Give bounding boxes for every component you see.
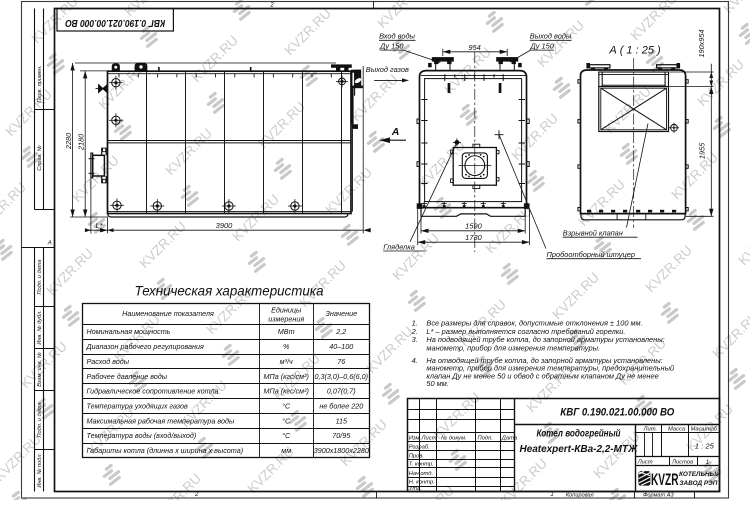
svg-text:°С: °С xyxy=(282,431,291,440)
svg-text:1: 1 xyxy=(550,492,553,498)
svg-text:А ( 1 : 25 ): А ( 1 : 25 ) xyxy=(608,45,661,57)
svg-text:Нач.отд.: Нач.отд. xyxy=(409,471,433,477)
svg-text:Выход воды: Выход воды xyxy=(530,32,572,41)
svg-text:°С: °С xyxy=(282,401,291,410)
svg-text:1: 1 xyxy=(706,459,709,466)
svg-text:Перв. примен.: Перв. примен. xyxy=(37,65,43,102)
svg-text:L*: L* xyxy=(95,221,103,230)
svg-text:Лит.: Лит. xyxy=(643,427,658,433)
svg-text:70/95: 70/95 xyxy=(332,431,351,440)
svg-text:не более 220: не более 220 xyxy=(319,401,363,410)
svg-text:МПа (кгс/см²): МПа (кгс/см²) xyxy=(264,372,309,381)
svg-text:Гляделка: Гляделка xyxy=(383,242,415,251)
svg-text:Подп. и дата: Подп. и дата xyxy=(37,402,43,437)
svg-text:Номинальная мощность: Номинальная мощность xyxy=(87,327,171,336)
svg-text:Выход газов: Выход газов xyxy=(366,65,409,74)
svg-text:Подп.: Подп. xyxy=(478,435,493,441)
svg-text:50 мм.: 50 мм. xyxy=(426,379,448,388)
svg-text:0,07(0,7): 0,07(0,7) xyxy=(327,387,356,396)
svg-text:мм: мм xyxy=(281,446,291,455)
svg-text:Габариты котла (длинна х ширин: Габариты котла (длинна х ширина х высота… xyxy=(87,446,244,455)
svg-text:3900х1800х2280: 3900х1800х2280 xyxy=(314,446,369,455)
svg-text:2: 2 xyxy=(269,3,274,9)
svg-text:Пров.: Пров. xyxy=(409,453,424,459)
svg-text:Единицы: Единицы xyxy=(271,305,302,314)
svg-text:Техническая характеристика: Техническая характеристика xyxy=(135,283,324,299)
svg-text:Гидравлическое сопротивление к: Гидравлическое сопротивление котла xyxy=(87,387,219,396)
svg-text:Масштаб: Масштаб xyxy=(691,427,718,433)
svg-text:954: 954 xyxy=(468,43,481,52)
svg-text:0,3(3,0)–0,6(6,0): 0,3(3,0)–0,6(6,0) xyxy=(315,372,369,381)
svg-text:Дата: Дата xyxy=(501,435,518,441)
svg-text:Н. контр.: Н. контр. xyxy=(409,480,435,486)
svg-text:4.: 4. xyxy=(412,356,418,365)
svg-text:м³/ч: м³/ч xyxy=(280,357,293,366)
svg-text:Подп. и дата: Подп. и дата xyxy=(37,259,43,294)
svg-text:Формат А3: Формат А3 xyxy=(643,493,674,499)
svg-text:Копировал: Копировал xyxy=(566,493,595,499)
svg-text:°С: °С xyxy=(282,416,291,425)
svg-text:А: А xyxy=(391,126,400,138)
svg-text:МПа (кгс/см²): МПа (кгс/см²) xyxy=(264,387,309,396)
svg-text:Листов: Листов xyxy=(671,460,693,466)
svg-text:2: 2 xyxy=(194,492,199,498)
svg-text:ЗАВОД РЭП: ЗАВОД РЭП xyxy=(679,480,717,487)
svg-text:Инв. № подл.: Инв. № подл. xyxy=(37,453,43,488)
svg-text:Лист: Лист xyxy=(637,460,653,466)
svg-text:Взрывной клапан: Взрывной клапан xyxy=(563,228,623,237)
svg-text:МВт: МВт xyxy=(278,327,295,336)
svg-text:Лист: Лист xyxy=(421,435,437,441)
svg-text:Котел водогрейный: Котел водогрейный xyxy=(537,428,622,439)
svg-text:1590: 1590 xyxy=(465,222,483,231)
svg-text:Справ. №: Справ. № xyxy=(37,145,43,170)
svg-text:%: % xyxy=(283,342,290,351)
svg-text:190х954: 190х954 xyxy=(697,30,706,58)
svg-text:2180: 2180 xyxy=(77,134,86,151)
svg-text:1730: 1730 xyxy=(465,233,483,242)
svg-text:КВГ 0.190.021.00.000 ВО: КВГ 0.190.021.00.000 ВО xyxy=(65,17,165,28)
svg-text:измерения: измерения xyxy=(268,314,304,323)
svg-text:Взам. инв. №: Взам. инв. № xyxy=(37,352,43,387)
svg-text:Ду 150: Ду 150 xyxy=(530,42,555,51)
svg-text:2280: 2280 xyxy=(64,133,73,150)
svg-text:3.: 3. xyxy=(412,335,418,344)
svg-text:манометр, прибор для измерения: манометр, прибор для измерения температу… xyxy=(426,343,600,352)
svg-text:КВГ 0.190.021.00.000 ВО: КВГ 0.190.021.00.000 ВО xyxy=(560,407,674,419)
svg-text:1955: 1955 xyxy=(697,142,706,159)
svg-text:40–100: 40–100 xyxy=(329,342,353,351)
svg-text:Heatexpert-КВа-2,2-МТЖ: Heatexpert-КВа-2,2-МТЖ xyxy=(520,444,639,455)
svg-text:Температура воды (вход/выход): Температура воды (вход/выход) xyxy=(87,431,197,440)
svg-text:3900: 3900 xyxy=(216,221,234,230)
svg-text:Разраб.: Разраб. xyxy=(409,445,430,451)
svg-text:А: А xyxy=(47,241,52,247)
svg-text:KVZR: KVZR xyxy=(651,470,679,489)
svg-text:Диапазон рабочего регулировани: Диапазон рабочего регулирования xyxy=(86,342,205,351)
svg-text:клапан Ду не менее 50 и обвод: клапан Ду не менее 50 и обвод с обратным… xyxy=(426,371,658,380)
svg-text:Наименование показателя: Наименование показателя xyxy=(122,309,214,318)
svg-text:76: 76 xyxy=(337,357,345,366)
svg-text:Рабочее давление воды: Рабочее давление воды xyxy=(87,372,168,381)
svg-text:Максимальная рабочая температу: Максимальная рабочая температура воды xyxy=(87,416,235,425)
svg-text:Значение: Значение xyxy=(326,309,358,318)
svg-text:КОТЕЛЬНЫЙ: КОТЕЛЬНЫЙ xyxy=(679,469,721,478)
svg-text:Температура уходящих газов: Температура уходящих газов xyxy=(87,401,189,410)
svg-text:Инв. № дубл.: Инв. № дубл. xyxy=(37,310,43,344)
svg-text:Утв.: Утв. xyxy=(408,486,422,492)
svg-text:Вход воды: Вход воды xyxy=(379,32,415,41)
svg-text:Масса: Масса xyxy=(668,427,686,433)
svg-text:Ду 150: Ду 150 xyxy=(379,42,404,51)
svg-text:115: 115 xyxy=(336,416,348,425)
svg-text:Т. контр.: Т. контр. xyxy=(409,462,434,468)
svg-text:1 : 25: 1 : 25 xyxy=(695,441,715,450)
svg-text:Расход воды: Расход воды xyxy=(87,357,130,366)
svg-text:2,2: 2,2 xyxy=(335,327,346,336)
svg-text:№ докум.: № докум. xyxy=(441,435,467,441)
svg-text:Пробоотборный штуцер: Пробоотборный штуцер xyxy=(547,250,635,259)
svg-text:Изм.: Изм. xyxy=(409,435,421,441)
